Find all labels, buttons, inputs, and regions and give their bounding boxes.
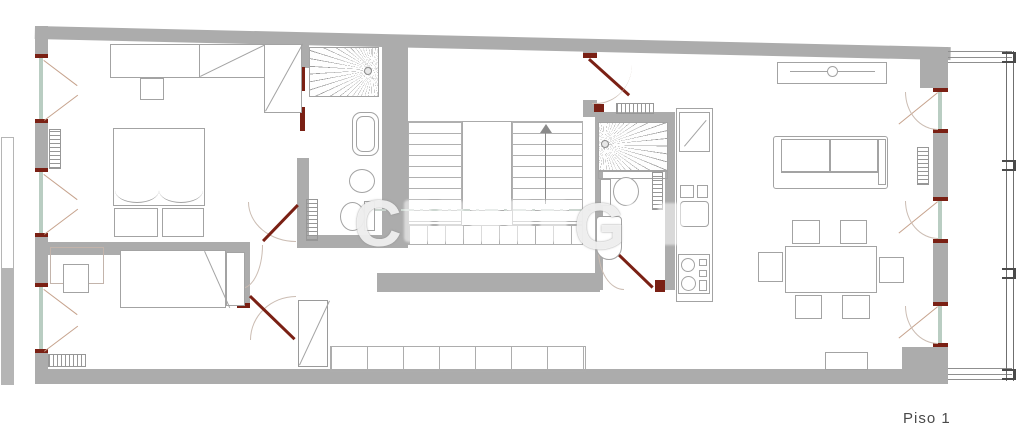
watermark-ghost xyxy=(471,200,500,242)
stove-grate xyxy=(699,270,707,277)
watermark-ghost xyxy=(404,200,431,242)
floor-label: Piso 1 xyxy=(903,410,951,427)
radiator xyxy=(306,199,318,241)
bed-pillow xyxy=(162,208,204,237)
dining-chair xyxy=(758,252,783,282)
dining-table xyxy=(785,246,877,293)
door-jamb xyxy=(655,280,665,292)
french-window-glass-3 xyxy=(938,306,942,344)
dining-chair xyxy=(879,257,904,283)
door-swing-arc xyxy=(592,60,632,104)
single-bed xyxy=(120,250,226,308)
railing-bracket xyxy=(1002,369,1016,380)
watermark-letter-g: G xyxy=(574,193,625,259)
radiator xyxy=(917,147,929,185)
washbasin-inner xyxy=(356,116,375,152)
wardrobe-section1 xyxy=(110,44,200,78)
built-in-cabinet-strip xyxy=(330,346,586,372)
sofa-seat-edge xyxy=(781,172,878,173)
stove-grate xyxy=(699,259,707,266)
right-wall-pier2 xyxy=(933,243,948,302)
railing-bracket xyxy=(1002,160,1016,171)
dining-chair xyxy=(795,295,822,319)
window-glass-left-3 xyxy=(39,287,43,353)
shower-head xyxy=(601,140,609,148)
stove-burner xyxy=(681,276,696,291)
dining-chair xyxy=(842,295,870,319)
right-wall-pier1 xyxy=(933,133,948,197)
casement-leaf xyxy=(44,326,78,352)
left-wall-pier1 xyxy=(35,123,48,172)
stove-grate xyxy=(699,280,707,291)
bed-pillow xyxy=(114,208,158,237)
watermark-ghost xyxy=(658,203,683,245)
stove-burner xyxy=(681,258,695,272)
radiator xyxy=(49,129,61,169)
door-jamb xyxy=(594,104,604,112)
shower xyxy=(598,122,668,171)
french-window-glass-2 xyxy=(938,201,942,239)
window-jamb xyxy=(933,239,948,243)
sofa-cushion xyxy=(830,139,878,172)
balcony-railing xyxy=(1006,51,1014,381)
stairwell-bottom-wall xyxy=(377,273,600,292)
bed-cover-curve xyxy=(115,178,159,203)
window-glass-left-1 xyxy=(39,58,43,123)
neighbor-structure-outline xyxy=(1,137,14,270)
floor-plan-canvas: C G Piso 1 xyxy=(0,0,1024,438)
watermark-ghost xyxy=(540,200,567,242)
stair-up-arrow-head xyxy=(540,124,552,133)
sofa-armrest xyxy=(878,139,886,185)
railing-bracket xyxy=(1002,268,1016,279)
kitchen-sink-basin xyxy=(680,201,709,227)
watermark-ghost xyxy=(438,200,463,242)
shower-head xyxy=(364,67,372,75)
neighbor-structure-fill xyxy=(1,268,14,385)
casement-leaf xyxy=(43,60,77,86)
casement-leaf xyxy=(44,95,78,121)
top-right-corner-pier xyxy=(920,47,948,88)
radiator xyxy=(48,354,86,367)
railing-bracket xyxy=(1002,52,1016,63)
casement-leaf xyxy=(43,174,77,200)
dining-chair xyxy=(840,220,867,244)
lowboard xyxy=(825,352,868,370)
window-swing-arc xyxy=(905,306,938,344)
watermark-ghost xyxy=(626,203,651,245)
window-glass-left-2 xyxy=(39,172,43,237)
bed-cover-curve xyxy=(159,178,203,203)
stair-up-arrow-shaft xyxy=(545,130,546,204)
window-swing-arc xyxy=(905,201,938,239)
watermark-ghost xyxy=(507,200,532,242)
casement-leaf xyxy=(44,209,78,235)
door-swing-arc xyxy=(248,202,296,242)
sofa-cushion xyxy=(781,139,830,172)
window-swing-arc xyxy=(905,92,938,130)
stair-void xyxy=(462,121,512,211)
watermark-letter-c: C xyxy=(354,190,402,256)
kitchen-sink-tap-box xyxy=(680,185,694,198)
dining-chair xyxy=(792,220,820,244)
kitchen-sink-side-box xyxy=(697,185,708,198)
radiator xyxy=(616,103,654,114)
desk xyxy=(63,264,89,293)
tv-circle xyxy=(827,66,838,77)
wardrobe-knob-box xyxy=(140,78,164,100)
bottom-right-corner-pier xyxy=(902,347,948,384)
bed-headboard xyxy=(226,252,245,306)
french-window-glass-1 xyxy=(938,92,942,130)
